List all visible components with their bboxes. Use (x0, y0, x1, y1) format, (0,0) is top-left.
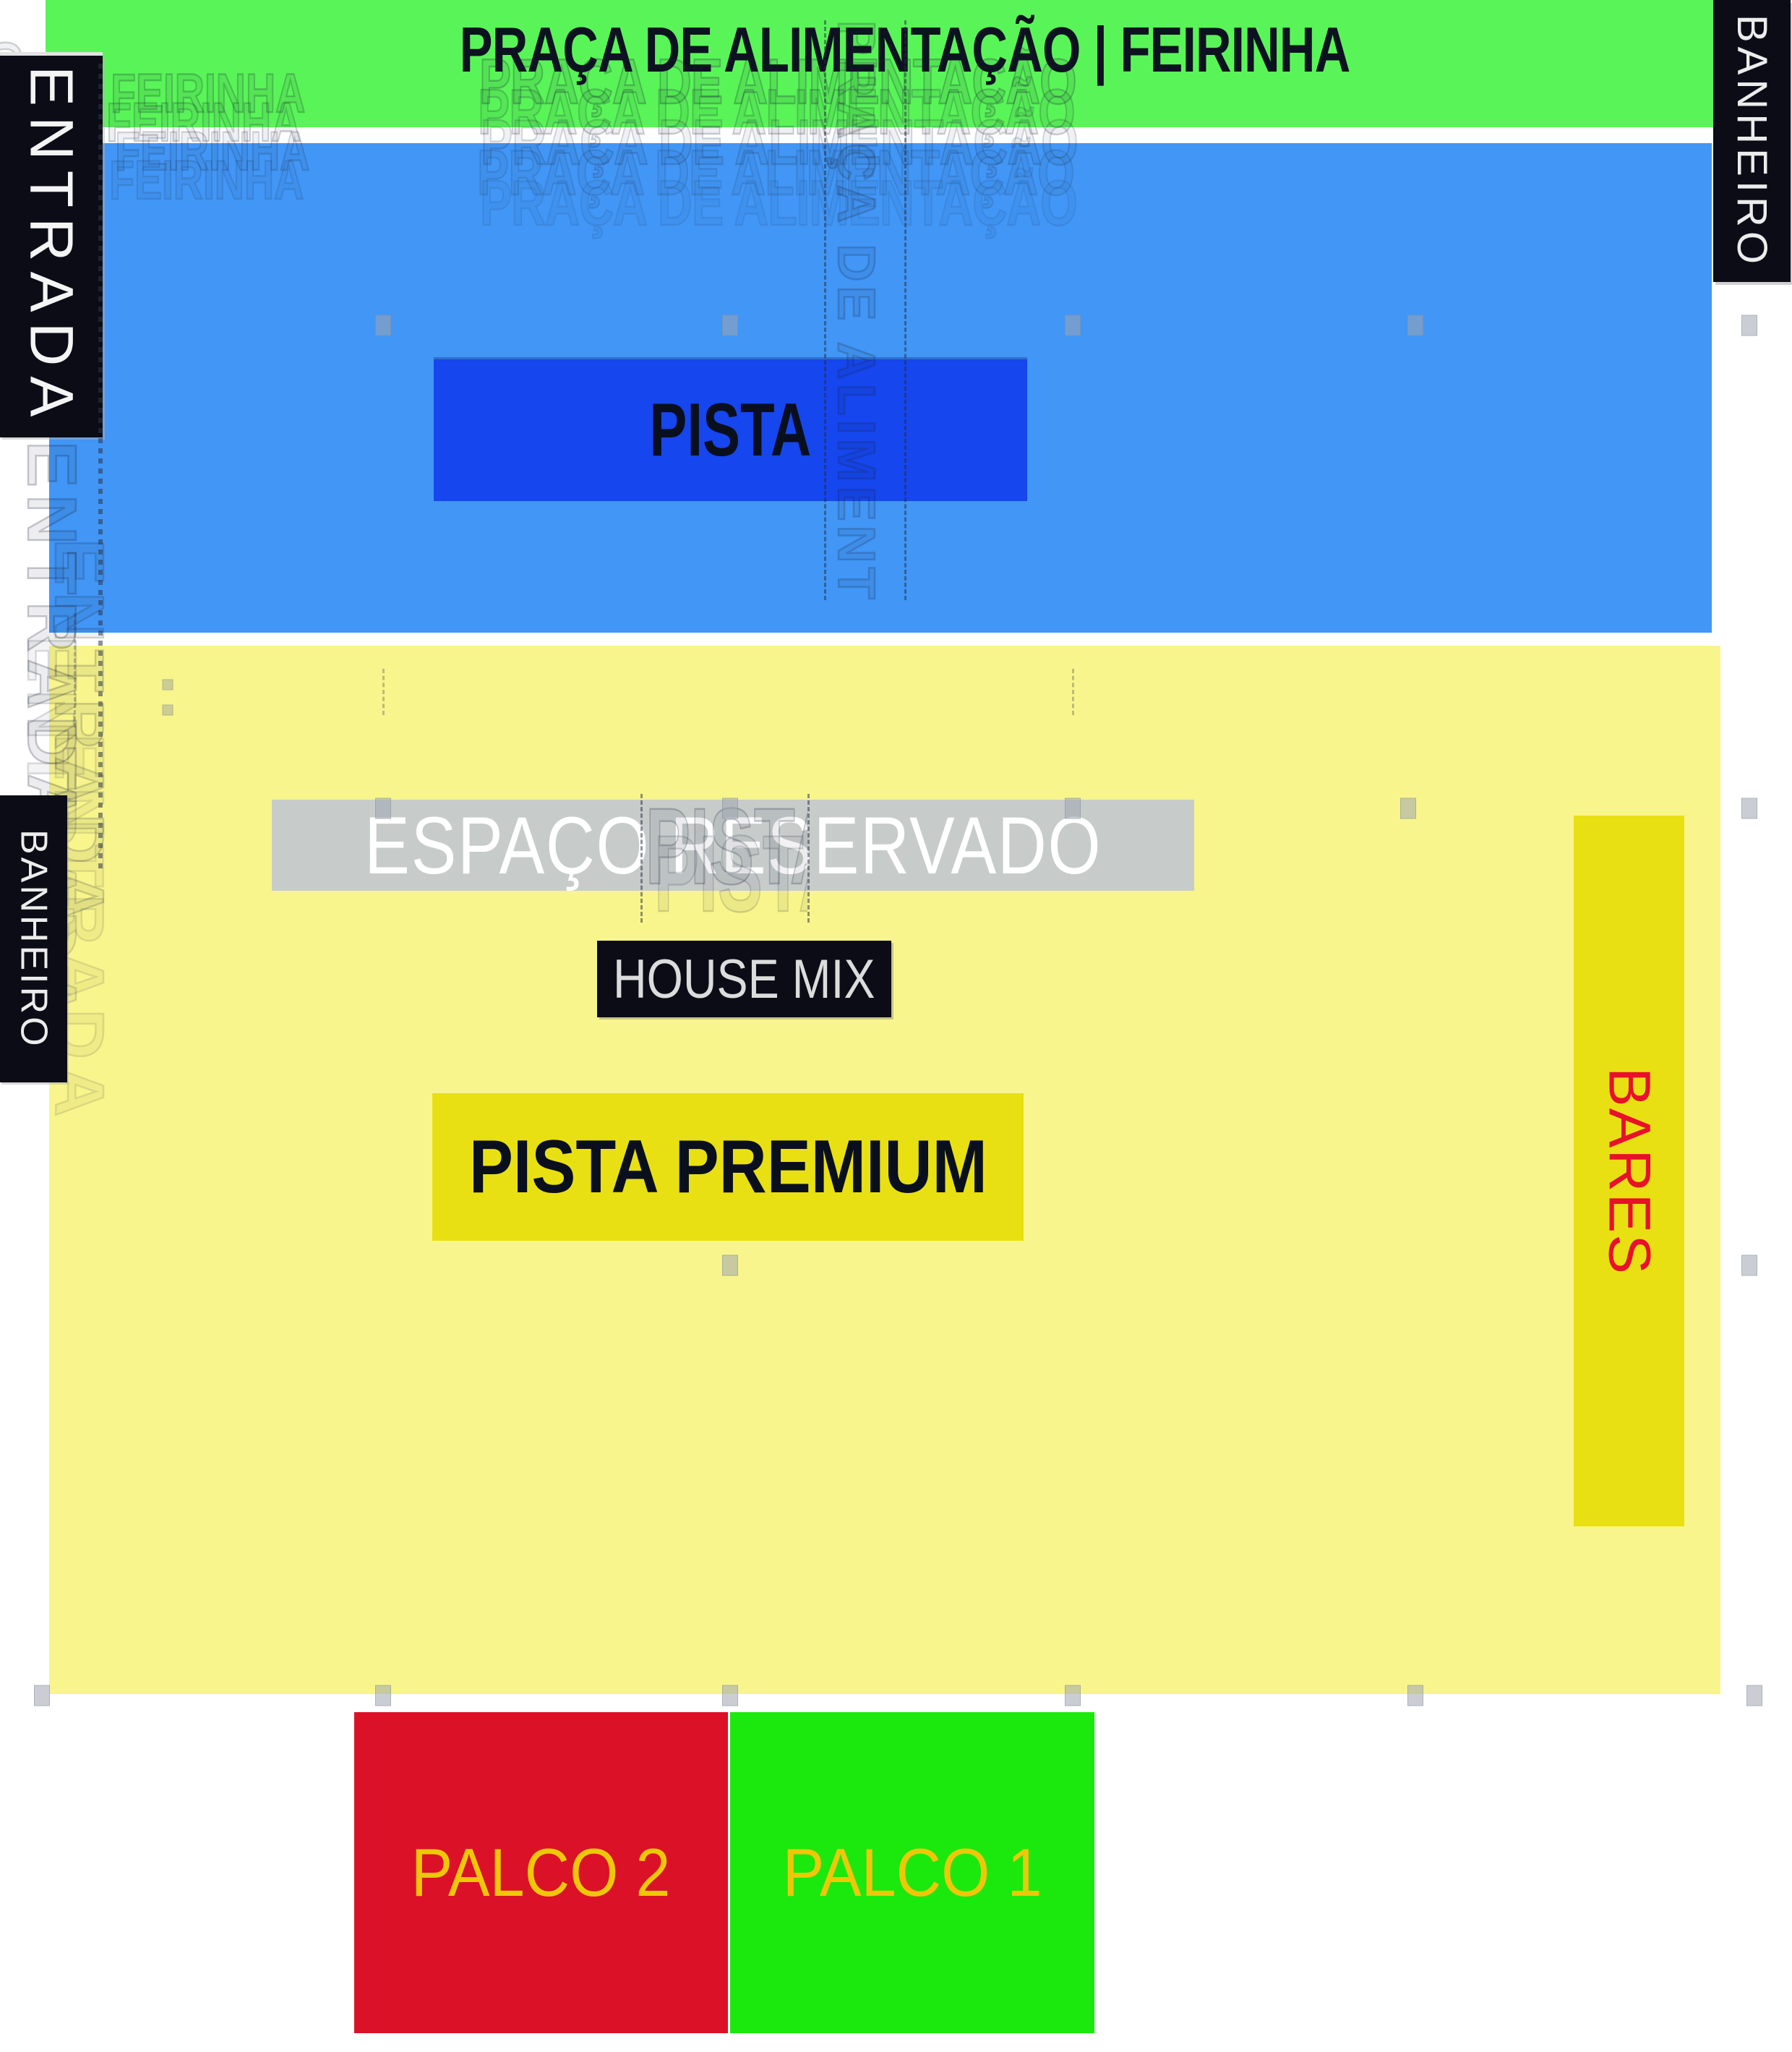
house-mix-label: HOUSE MIX (613, 948, 875, 1011)
selection-handle[interactable] (1746, 1685, 1762, 1706)
selection-handle[interactable] (1065, 315, 1081, 336)
selection-handle[interactable] (1065, 1685, 1081, 1706)
selection-handle[interactable] (163, 680, 173, 691)
selection-handle[interactable] (375, 315, 391, 336)
selection-handle[interactable] (1741, 1255, 1757, 1276)
bars-label: BARES (1595, 1067, 1663, 1275)
selection-handle[interactable] (1400, 798, 1416, 819)
restroom-left-label: BANHEIRO (12, 829, 56, 1049)
dash-fragment (1072, 669, 1074, 715)
ghost-pista-text: PISTA (654, 811, 810, 923)
selection-handle[interactable] (722, 798, 738, 819)
selection-marquee-line (98, 64, 103, 871)
dash-fragment (382, 669, 385, 715)
stage-2-box[interactable]: PALCO 2 (354, 1712, 728, 2033)
selection-handle[interactable] (34, 1685, 50, 1706)
selection-handle[interactable] (722, 315, 738, 336)
selection-handle[interactable] (1065, 798, 1081, 819)
venue-map: PRAÇA DE ALIMENTAÇÃO | FEIRINHA PRAÇA DE… (0, 0, 1792, 2052)
selection-handle[interactable] (1741, 315, 1757, 336)
selection-handle[interactable] (722, 1685, 738, 1706)
pista-label: PISTA (650, 388, 812, 474)
ghost-rotated-title: PRAÇA DE ALIMENTAÇÃO | FEIRINHA (826, 20, 886, 600)
house-mix-box[interactable]: HOUSE MIX (597, 941, 891, 1017)
entrance-label: ENTRADA (17, 66, 87, 427)
pista-box[interactable]: PISTA (434, 359, 1027, 501)
entrance-box[interactable]: ENTRADA (0, 56, 103, 437)
restroom-left-box[interactable]: BANHEIRO (0, 795, 67, 1082)
restroom-right-label: BANHEIRO (1728, 14, 1776, 268)
selection-handle[interactable] (722, 1255, 738, 1276)
bars-box[interactable]: BARES (1574, 816, 1684, 1526)
pista-premium-box[interactable]: PISTA PREMIUM (432, 1093, 1024, 1241)
selection-handle[interactable] (375, 798, 391, 819)
restroom-right-box[interactable]: BANHEIRO (1713, 0, 1791, 282)
selection-handle[interactable] (163, 705, 173, 716)
stage-1-box[interactable]: PALCO 1 (730, 1712, 1094, 2033)
ghost-rotated-title-strip[interactable]: PRAÇA DE ALIMENTAÇÃO | FEIRINHA (824, 20, 906, 600)
selection-handle[interactable] (1407, 1685, 1423, 1706)
pista-premium-label: PISTA PREMIUM (469, 1124, 987, 1210)
selection-handle[interactable] (375, 1685, 391, 1706)
selection-handle[interactable] (1407, 315, 1423, 336)
stage-2-label: PALCO 2 (411, 1834, 671, 1912)
stage-1-label: PALCO 1 (783, 1834, 1042, 1912)
dash-fragment (74, 613, 76, 727)
selection-handle[interactable] (1741, 798, 1757, 819)
